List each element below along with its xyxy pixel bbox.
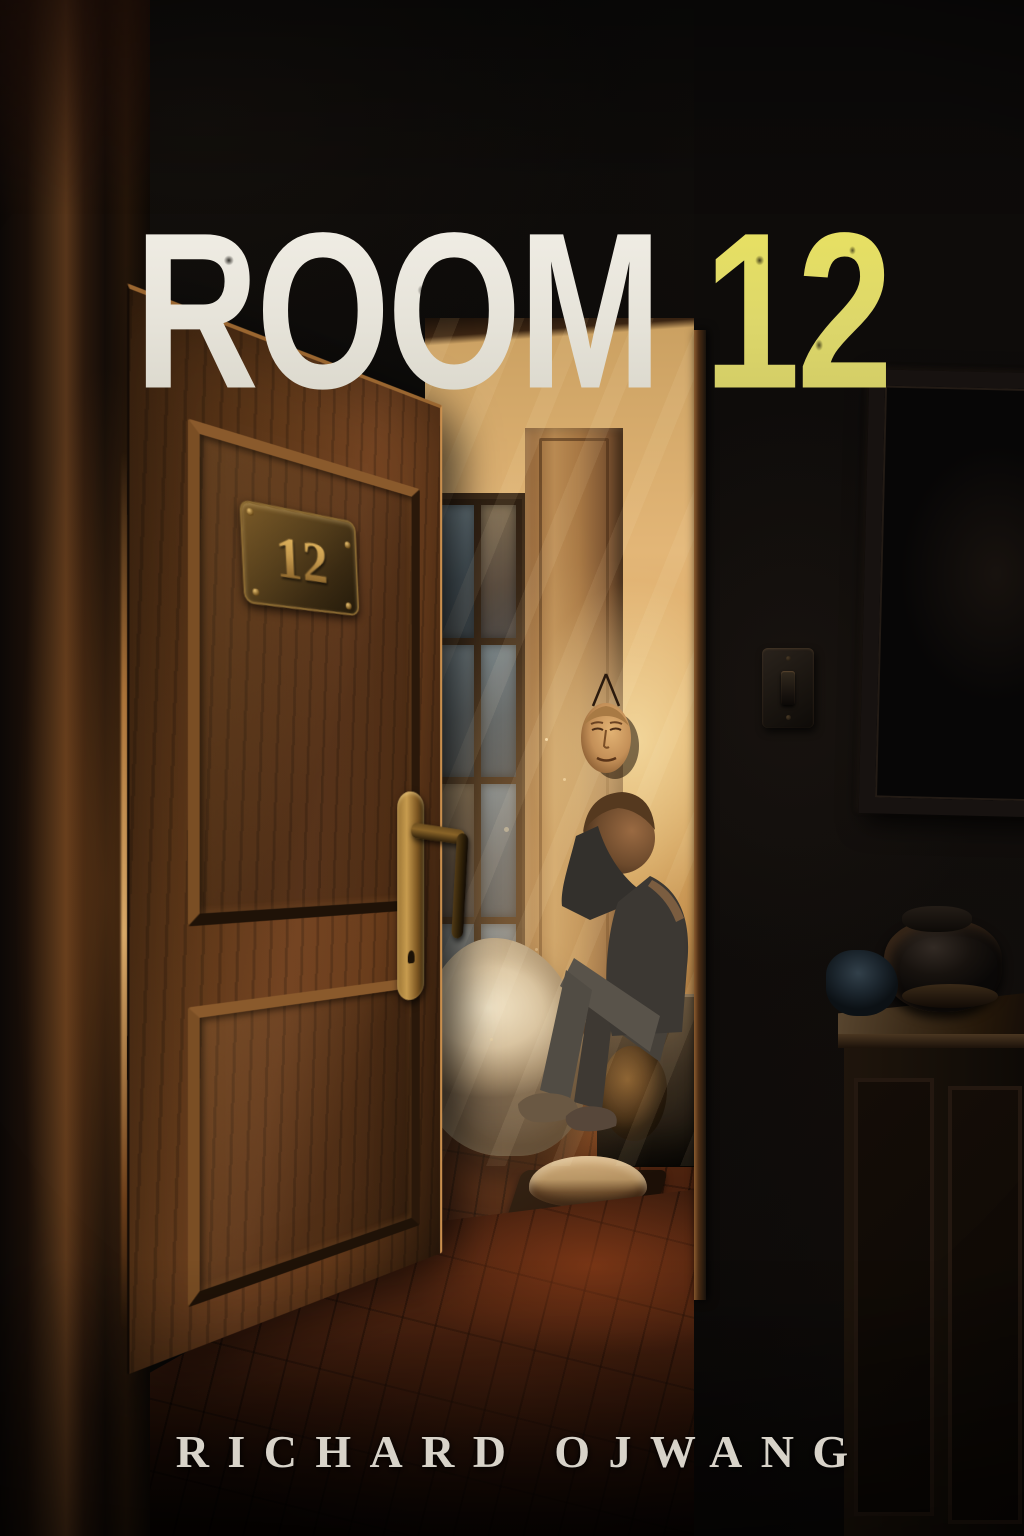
window-pane xyxy=(481,505,516,638)
author-name: RICHARD OJWANG xyxy=(0,1425,1024,1478)
light-switch xyxy=(762,648,814,728)
seated-man-figure xyxy=(500,778,700,1150)
screw xyxy=(786,656,791,661)
window-pane xyxy=(481,645,516,778)
keyhole xyxy=(408,950,415,964)
cabinet-edge xyxy=(838,1034,1024,1048)
dish xyxy=(902,984,998,1008)
door: 12 xyxy=(127,283,442,1375)
door-panel-lower xyxy=(188,977,420,1308)
screw xyxy=(786,715,791,720)
hanging-mask-face xyxy=(571,670,641,780)
window-pane xyxy=(439,505,474,638)
cloth xyxy=(826,950,898,1016)
door-panel-upper xyxy=(188,418,420,926)
doorway-jamb xyxy=(694,330,706,1300)
book-cover: 12 ROOM 12 RICHARD OJWANG xyxy=(0,0,1024,1536)
title-number: 12 xyxy=(704,185,890,434)
screw xyxy=(346,602,352,610)
screw xyxy=(252,588,259,596)
dust-motes xyxy=(545,738,548,741)
window-pane xyxy=(439,645,474,778)
title-word: ROOM xyxy=(134,185,659,434)
title-space xyxy=(659,185,704,434)
door-number: 12 xyxy=(274,526,329,593)
screw xyxy=(345,541,351,549)
book-title: ROOM 12 xyxy=(102,199,921,421)
picture-frame xyxy=(859,369,1024,819)
screw xyxy=(247,508,254,517)
switch-toggle xyxy=(781,671,795,705)
